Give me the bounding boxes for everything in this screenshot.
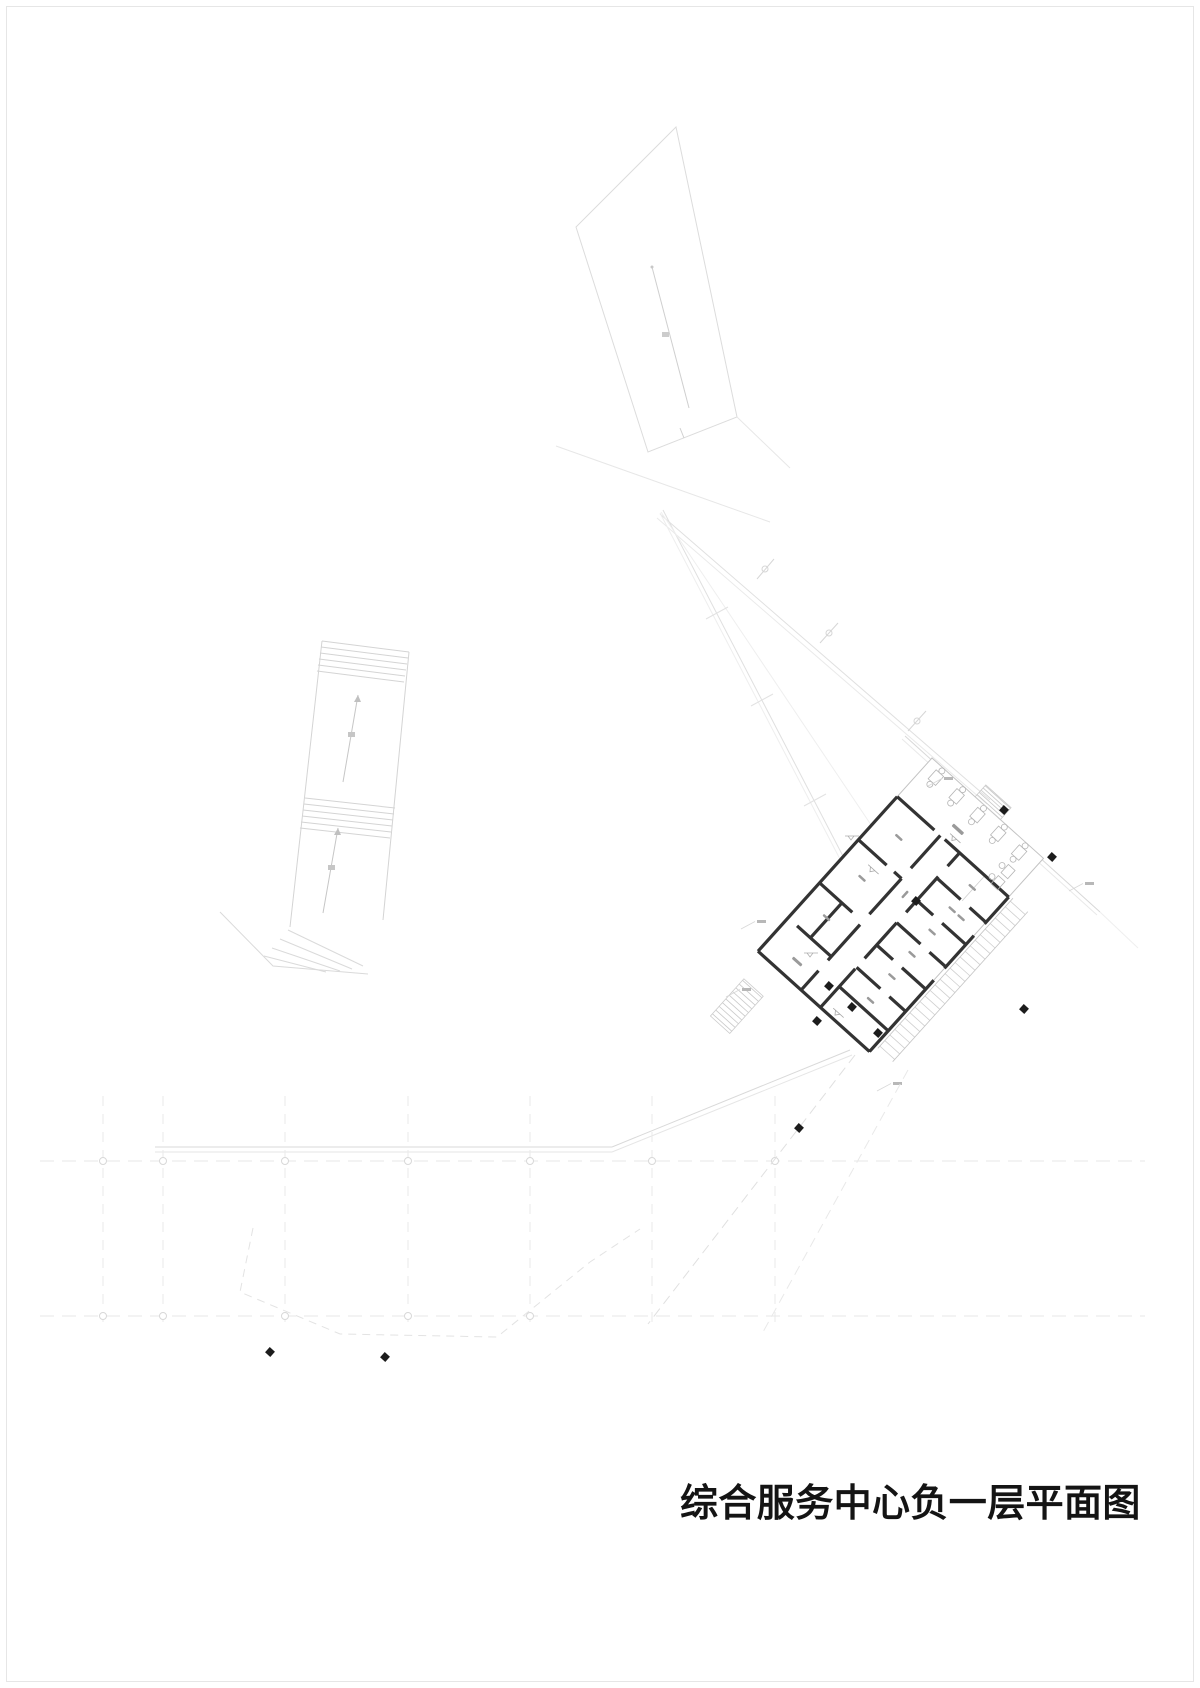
slope-arrow [323,828,341,913]
column-marker [999,805,1009,815]
slope-label-mark [662,332,669,337]
axis-grid-nodes [100,1158,779,1320]
drawing-sheet: 综合服务中心负一层平面图 [0,0,1200,1688]
column-marker [265,1347,275,1357]
building [704,746,1072,1127]
floor-plan-svg [0,0,1200,1688]
column-marker [1019,1004,1029,1014]
column-marker [380,1352,390,1362]
axis-grid-verticals [103,1096,775,1326]
ramp-top-outline [556,127,790,522]
drawing-title: 综合服务中心负一层平面图 [680,1472,1141,1527]
column-marker [812,1016,822,1026]
ramp-left [220,641,409,974]
site-grid [40,1050,1145,1337]
slope-arrow [343,695,361,782]
column-marker [1047,852,1057,862]
